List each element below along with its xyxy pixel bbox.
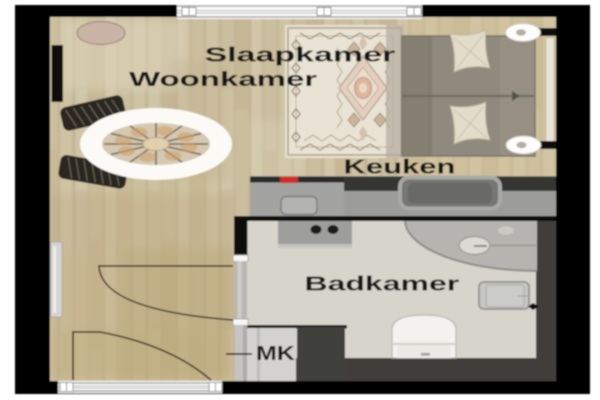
svg-text:Slaapkamer: Slaapkamer xyxy=(204,44,395,66)
svg-text:Badkamer: Badkamer xyxy=(305,273,460,295)
svg-text:Woonkamer: Woonkamer xyxy=(129,68,318,91)
svg-text:MK: MK xyxy=(256,342,296,364)
svg-text:Keuken: Keuken xyxy=(344,155,456,178)
